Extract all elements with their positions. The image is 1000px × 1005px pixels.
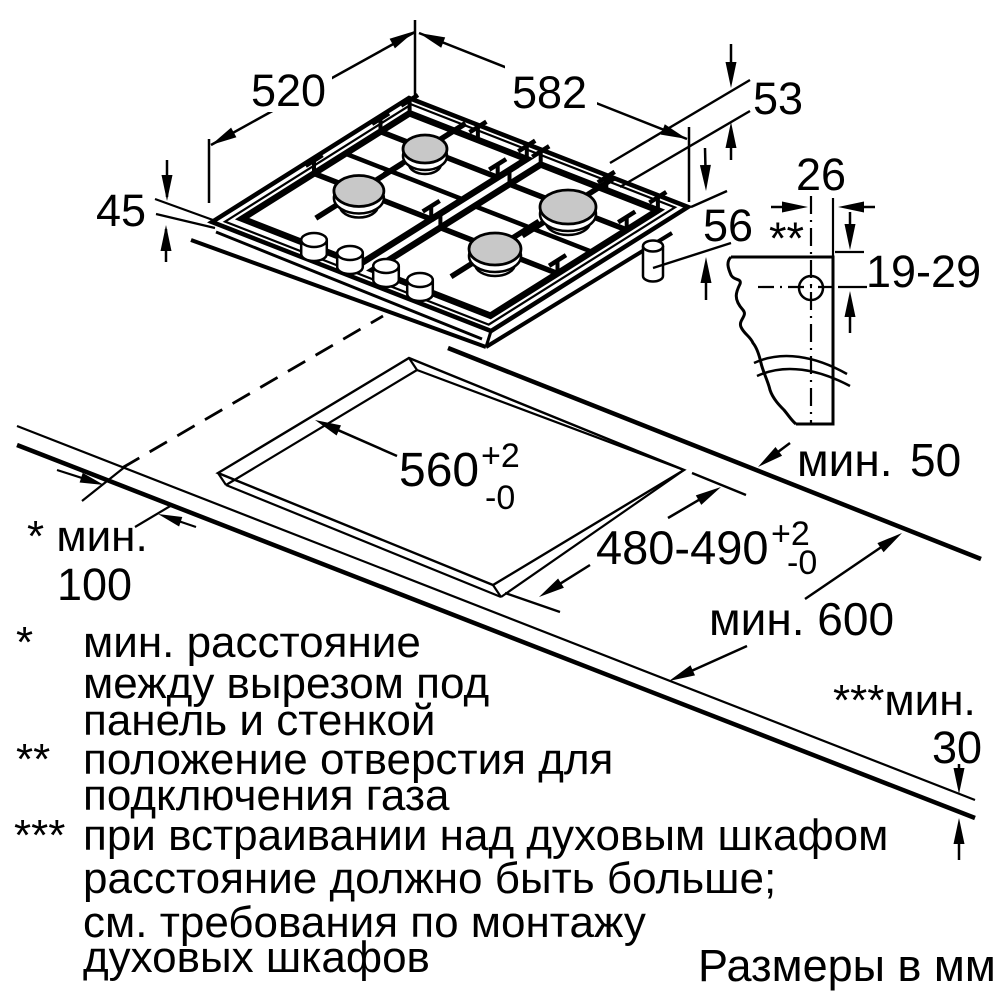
svg-text:**: ** [769, 213, 804, 264]
svg-text:53: 53 [753, 73, 803, 124]
svg-text:при встраивании над духовым шк: при встраивании над духовым шкафом [83, 811, 888, 860]
svg-text:582: 582 [512, 67, 587, 118]
svg-text:26: 26 [796, 149, 846, 200]
svg-text:***мин.: ***мин. [833, 676, 976, 725]
svg-text:+2: +2 [481, 437, 520, 475]
svg-text:мин.: мин. [797, 434, 893, 486]
svg-text:19-29: 19-29 [866, 246, 981, 297]
svg-text:100: 100 [57, 559, 132, 610]
svg-text:расстояние должно быть больше;: расстояние должно быть больше; [83, 854, 776, 903]
svg-text:***: *** [14, 811, 65, 860]
svg-text:Размеры в мм: Размеры в мм [698, 940, 996, 991]
svg-text:*: * [16, 618, 33, 667]
svg-text:30: 30 [932, 722, 982, 773]
svg-text:-0: -0 [485, 479, 515, 517]
svg-text:50: 50 [910, 434, 961, 486]
svg-text:520: 520 [251, 65, 326, 116]
svg-text:-0: -0 [787, 544, 817, 582]
svg-text:45: 45 [96, 185, 146, 236]
svg-text:духовых шкафов: духовых шкафов [83, 933, 430, 982]
svg-text:мин. 600: мин. 600 [709, 593, 894, 645]
svg-text:56: 56 [703, 200, 753, 251]
svg-text:560: 560 [399, 444, 479, 497]
svg-text:480-490: 480-490 [596, 521, 769, 574]
svg-text:**: ** [16, 735, 50, 784]
svg-text:* мин.: * мин. [27, 512, 148, 561]
